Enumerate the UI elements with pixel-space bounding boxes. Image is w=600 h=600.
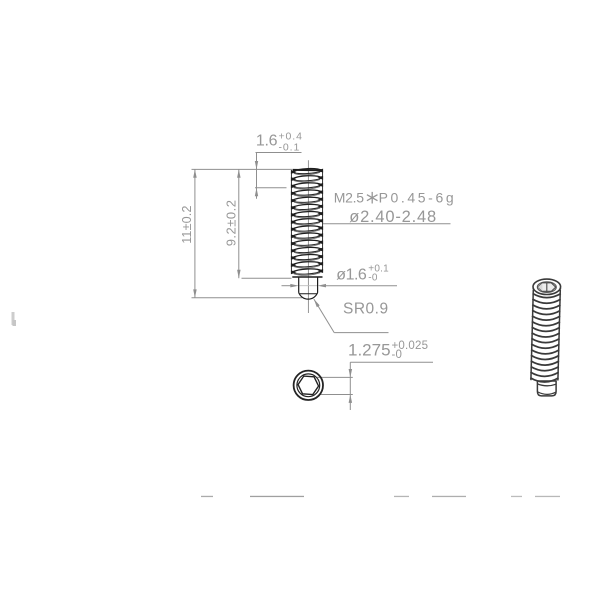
svg-text:ø1.6: ø1.6 (336, 267, 367, 284)
svg-text:-0: -0 (368, 273, 378, 284)
svg-text:P0.45-6g: P0.45-6g (379, 190, 457, 206)
svg-text:11±0.2: 11±0.2 (180, 205, 194, 243)
svg-text:9.2±0.2: 9.2±0.2 (223, 200, 238, 247)
svg-text:-0: -0 (392, 349, 403, 361)
svg-text:ø2.40-2.48: ø2.40-2.48 (349, 208, 437, 226)
svg-text:1.275: 1.275 (348, 340, 391, 359)
svg-text:M2.5: M2.5 (334, 190, 364, 206)
svg-text:1.6: 1.6 (256, 133, 278, 150)
svg-text:SR0.9: SR0.9 (343, 301, 389, 318)
svg-text:-0.1: -0.1 (279, 141, 301, 153)
